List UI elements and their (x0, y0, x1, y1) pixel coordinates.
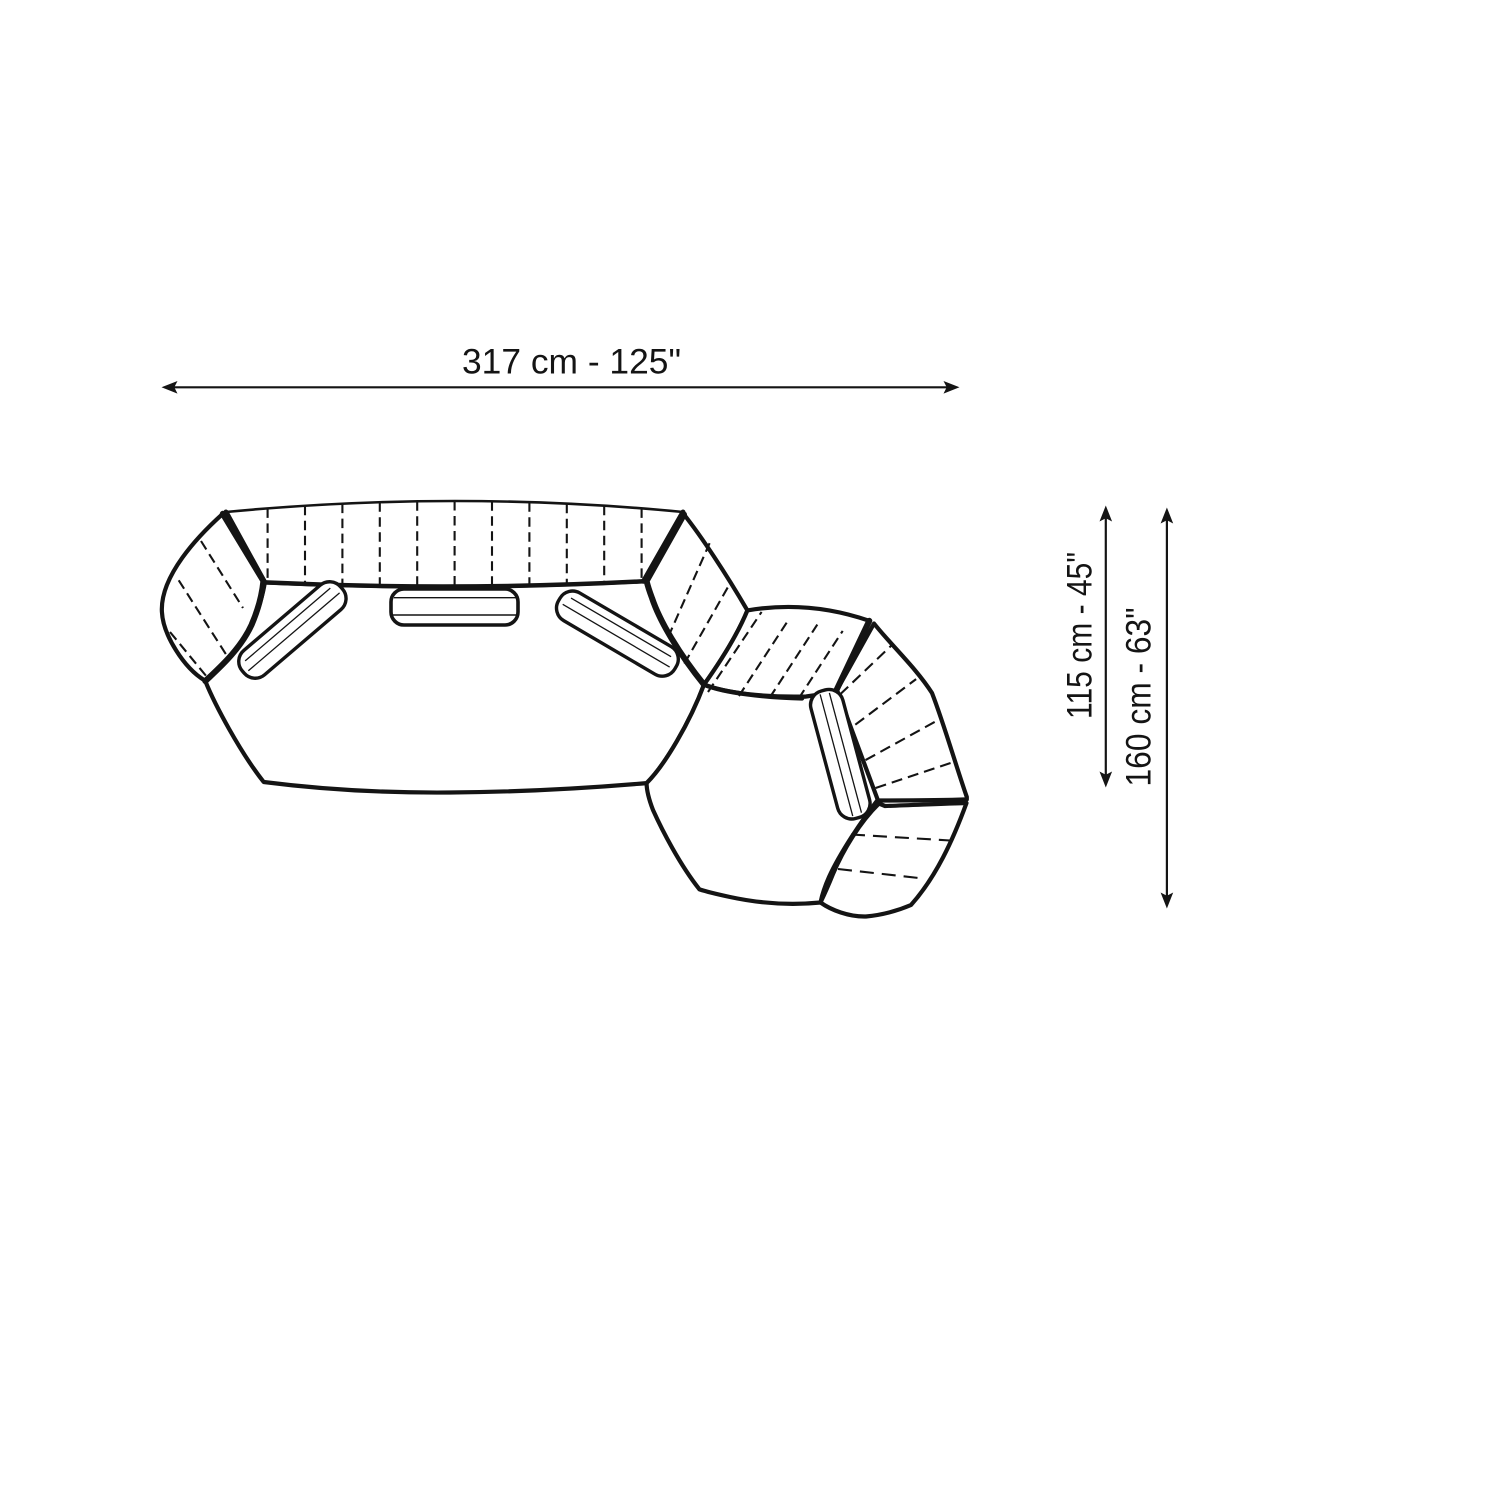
svg-text:317 cm - 125": 317 cm - 125" (462, 343, 681, 382)
svg-text:115 cm - 45": 115 cm - 45" (1061, 552, 1100, 719)
svg-text:160 cm - 63": 160 cm - 63" (1120, 608, 1159, 787)
